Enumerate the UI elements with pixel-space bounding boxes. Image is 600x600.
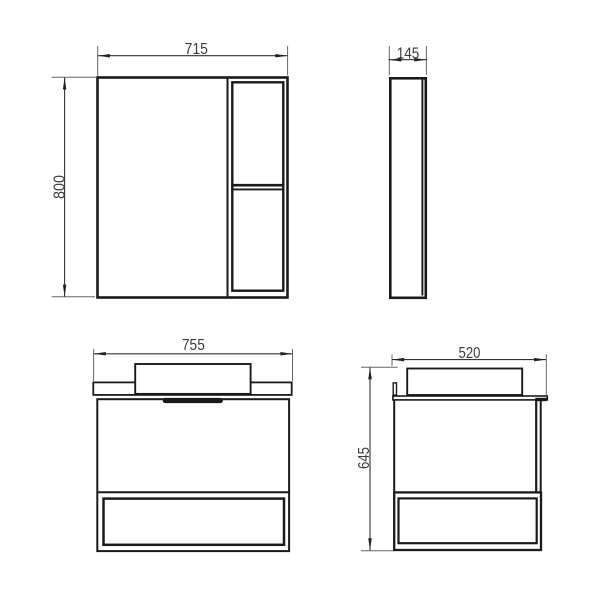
svg-text:800: 800 bbox=[51, 175, 68, 199]
svg-text:145: 145 bbox=[397, 46, 420, 63]
svg-text:715: 715 bbox=[185, 41, 208, 58]
svg-text:645: 645 bbox=[356, 447, 373, 469]
svg-text:520: 520 bbox=[459, 345, 481, 362]
svg-text:755: 755 bbox=[182, 337, 205, 354]
